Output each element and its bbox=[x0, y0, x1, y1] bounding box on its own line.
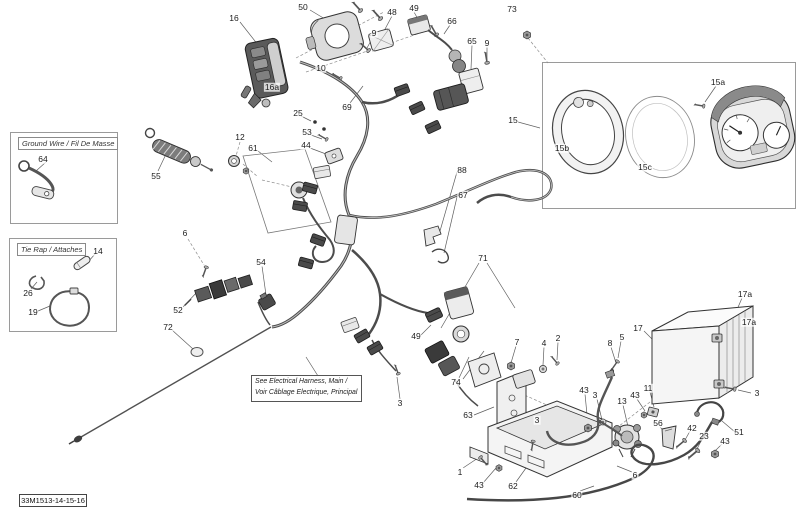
grip-part-drawing bbox=[140, 127, 219, 175]
tie-rap-inset-box: Tie Rap / Attaches bbox=[9, 238, 117, 332]
diagram-artwork bbox=[0, 0, 800, 507]
ground-wire-inset-box: Ground Wire / Fil De Masse bbox=[10, 132, 118, 224]
leader-lines bbox=[31, 10, 751, 491]
relay-connector-group-drawing bbox=[424, 286, 501, 406]
note-line-1: See Electrical Harness, Main / bbox=[255, 377, 361, 388]
modules-drawing bbox=[368, 15, 483, 111]
tie-rap-inset-title: Tie Rap / Attaches bbox=[17, 243, 86, 256]
parts-diagram-page: { "page": {"background": "#ffffff"}, "fo… bbox=[0, 0, 800, 507]
switch-assembly-drawing bbox=[236, 37, 290, 108]
see-electrical-harness-note: See Electrical Harness, Main / Voir Câbl… bbox=[251, 375, 362, 402]
switch-housing-drawing bbox=[302, 10, 366, 65]
battery-drawing bbox=[610, 306, 753, 404]
small-brackets-drawing bbox=[424, 226, 448, 263]
wiring-harness-drawing bbox=[258, 62, 551, 376]
ignition-plate-group-drawing bbox=[229, 120, 344, 262]
note-line-2: Voir Câblage Electrique, Principal bbox=[255, 388, 361, 399]
diagram-code-box: 33M1513-14-15-16 bbox=[19, 494, 87, 507]
ground-wire-inset-title: Ground Wire / Fil De Masse bbox=[18, 137, 118, 150]
gauge-cluster-drawing bbox=[544, 79, 799, 185]
